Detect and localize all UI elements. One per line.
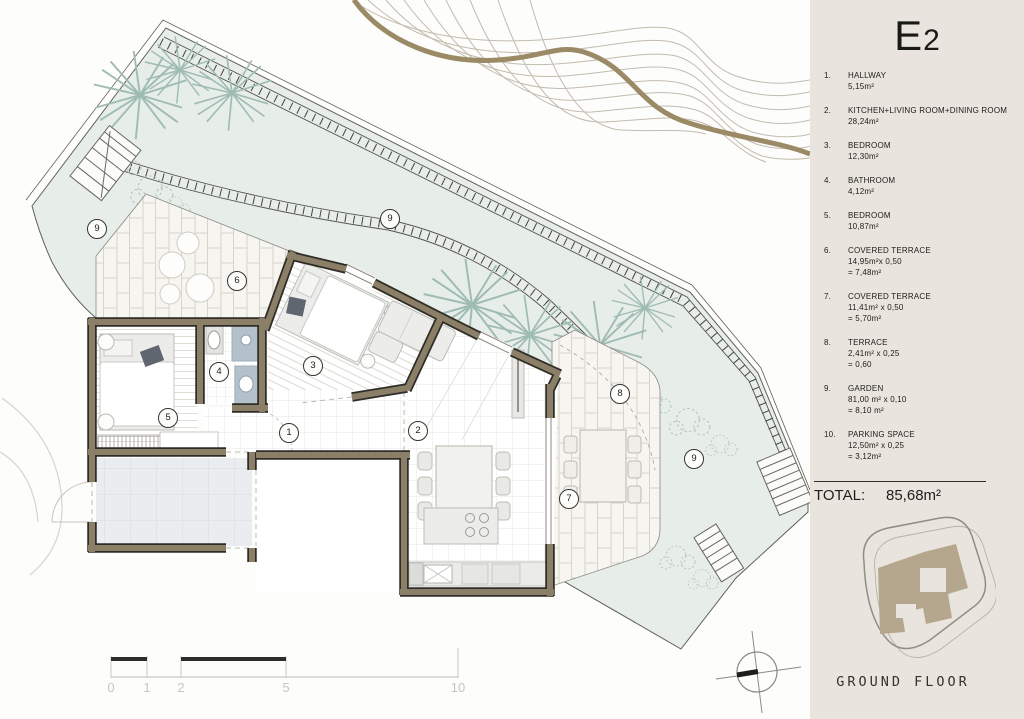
legend-item-area: 12,30m² [848,151,891,162]
room-label: 9 [684,449,704,469]
unit-title-main: E [894,12,923,59]
legend-sidebar: E2 1.HALLWAY5,15m²2.KITCHEN+LIVING ROOM+… [810,0,1024,719]
legend-item-result: = 5,70m² [848,313,931,324]
scale-tick-label: 2 [177,680,184,695]
legend-item-number: 8. [824,337,848,370]
legend-item-label: BEDROOM [848,210,891,221]
legend-item: 2.KITCHEN+LIVING ROOM+DINING ROOM28,24m² [824,105,1014,127]
legend-item: 10.PARKING SPACE12,50m² x 0,25= 3,12m² [824,429,1014,462]
legend-item-area: 4,12m² [848,186,895,197]
legend-item: 9.GARDEN81,00 m² x 0,10= 8,10 m² [824,383,1014,416]
legend-item-label: GARDEN [848,383,907,394]
room-legend: 1.HALLWAY5,15m²2.KITCHEN+LIVING ROOM+DIN… [824,70,1014,475]
legend-item-area: 5,15m² [848,81,886,92]
driveway-lines [0,398,62,575]
legend-item: 5.BEDROOM10,87m² [824,210,1014,232]
floor-plan-drawing: 12345678999 012510 [0,0,810,719]
room-label: 6 [227,271,247,291]
legend-item-result: = 3,12m² [848,451,915,462]
footprint-notch-2 [896,604,916,618]
legend-item-result: = 8,10 m² [848,405,907,416]
legend-item-area: 12,50m² x 0,25 [848,440,915,451]
unit-title: E2 [810,12,1024,60]
floor-plan-svg [0,0,810,719]
legend-item-number: 9. [824,383,848,416]
footprint-diagram [836,505,996,665]
room-label: 7 [559,489,579,509]
legend-item-number: 3. [824,140,848,162]
room-label: 9 [380,209,400,229]
room-label: 5 [158,408,178,428]
scale-tick-label: 10 [451,680,465,695]
total-divider [814,481,986,482]
room-label: 4 [209,362,229,382]
legend-item-label: COVERED TERRACE [848,291,931,302]
legend-item: 8.TERRACE2,41m² x 0,25= 0,60 [824,337,1014,370]
legend-item-label: HALLWAY [848,70,886,81]
north-compass [716,631,801,713]
room-label: 1 [279,423,299,443]
scale-tick-label: 5 [282,680,289,695]
room-label: 9 [87,219,107,239]
legend-item-area: 2,41m² x 0,25 [848,348,900,359]
legend-item-number: 4. [824,175,848,197]
legend-item-label: COVERED TERRACE [848,245,931,256]
legend-item-number: 1. [824,70,848,92]
legend-item: 6.COVERED TERRACE14,95m²x 0,50= 7,48m² [824,245,1014,278]
legend-item: 7.COVERED TERRACE11,41m² x 0,50= 5,70m² [824,291,1014,324]
legend-item-result: = 0,60 [848,359,900,370]
room-label: 3 [303,356,323,376]
legend-item: 1.HALLWAY5,15m² [824,70,1014,92]
legend-item-number: 2. [824,105,848,127]
unit-title-sub: 2 [923,24,940,57]
footprint-notch-1 [920,568,946,592]
legend-item-label: TERRACE [848,337,900,348]
room-label: 8 [610,384,630,404]
legend-item-label: KITCHEN+LIVING ROOM+DINING ROOM [848,105,1007,116]
scale-bar [111,648,459,678]
total-value: 85,68m² [886,487,941,504]
scale-tick-label: 1 [143,680,150,695]
legend-item-area: 10,87m² [848,221,891,232]
floor-caption: GROUND FLOOR [810,674,996,690]
legend-item-number: 10. [824,429,848,462]
legend-item: 3.BEDROOM12,30m² [824,140,1014,162]
legend-item-area: 28,24m² [848,116,1007,127]
legend-item-label: BATHROOM [848,175,895,186]
scale-tick-label: 0 [107,680,114,695]
legend-item-number: 6. [824,245,848,278]
total-row: TOTAL: 85,68m² [814,487,1004,504]
legend-item: 4.BATHROOM4,12m² [824,175,1014,197]
legend-item-area: 14,95m²x 0,50 [848,256,931,267]
legend-item-number: 7. [824,291,848,324]
total-label: TOTAL: [814,487,865,504]
legend-item-label: BEDROOM [848,140,891,151]
floor-plan-page: 12345678999 012510 E2 1.HALLWAY5,15m²2.K… [0,0,1024,719]
legend-item-number: 5. [824,210,848,232]
legend-item-area: 11,41m² x 0,50 [848,302,931,313]
legend-item-result: = 7,48m² [848,267,931,278]
legend-item-area: 81,00 m² x 0,10 [848,394,907,405]
legend-item-label: PARKING SPACE [848,429,915,440]
room-label: 2 [408,421,428,441]
